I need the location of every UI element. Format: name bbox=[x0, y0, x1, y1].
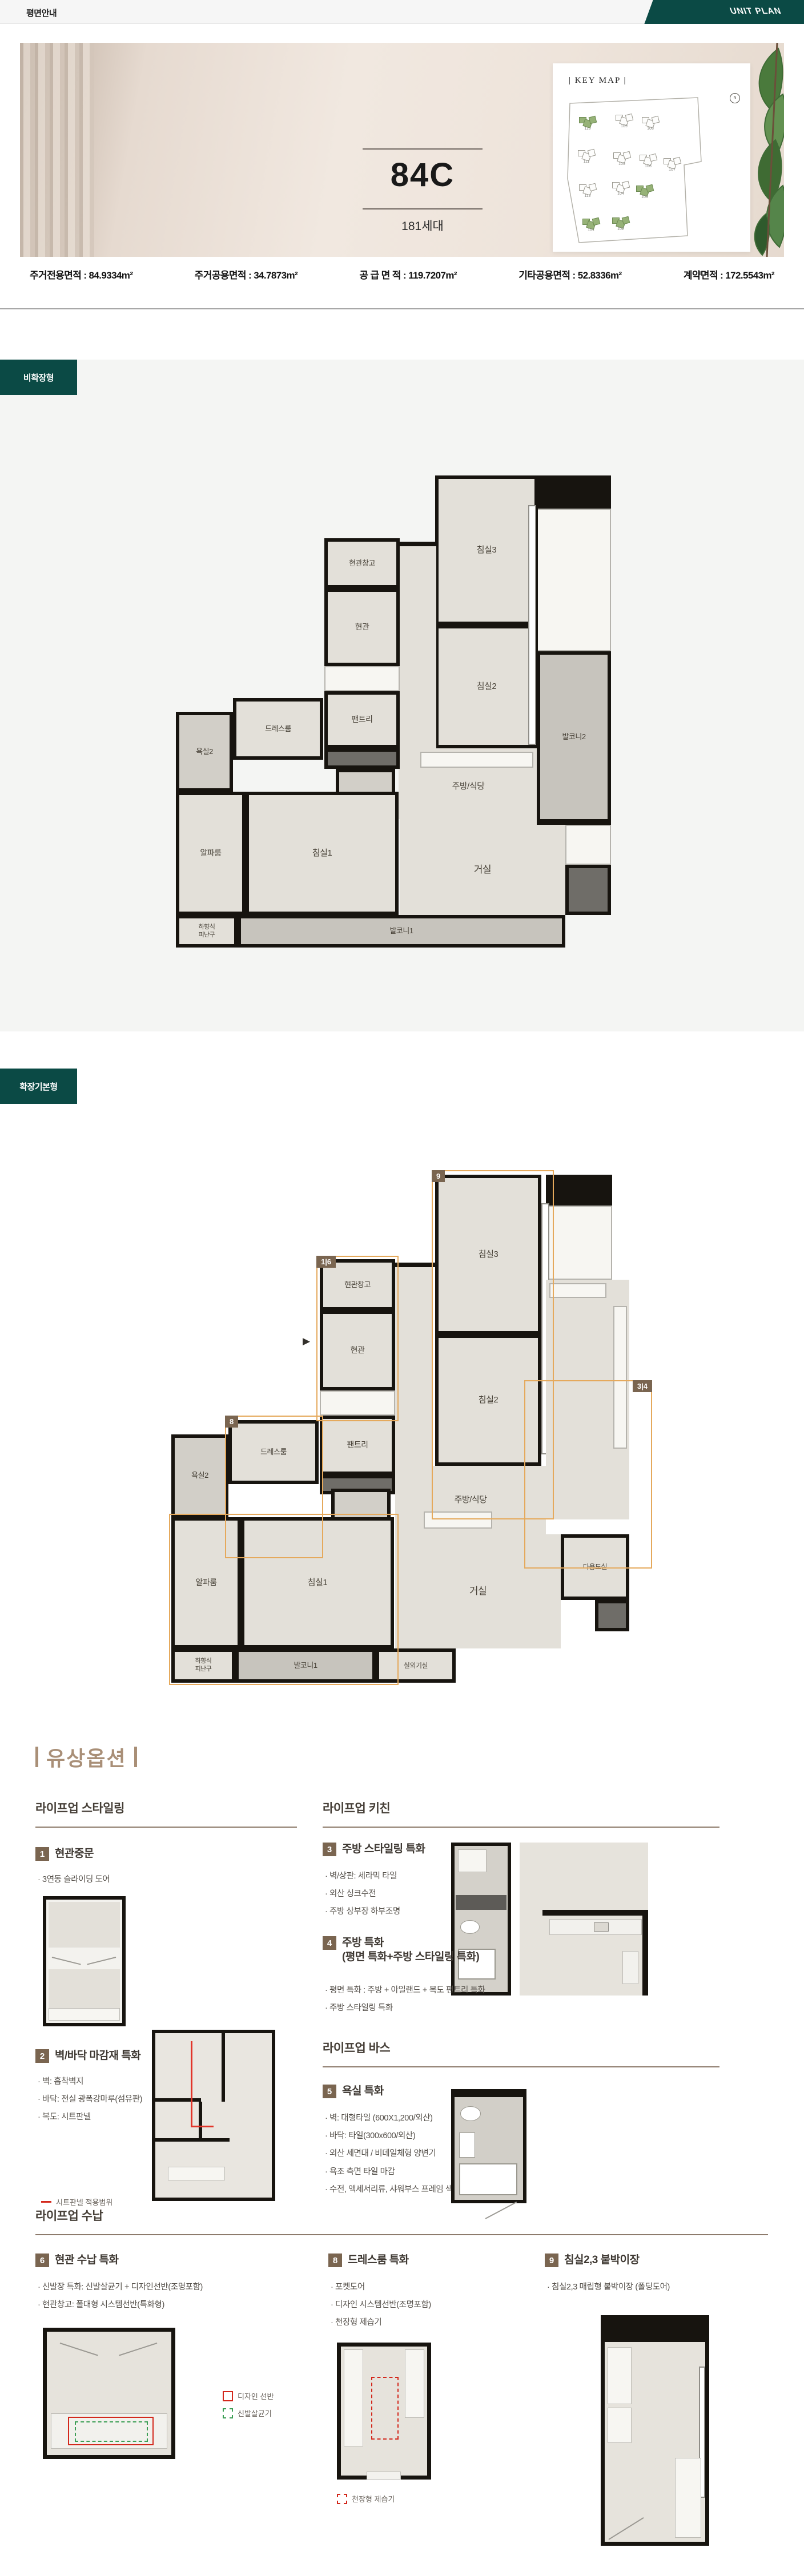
option-bullet: · 벽/상판: 세라믹 타일 bbox=[325, 1868, 400, 1885]
option-image-entry-storage bbox=[43, 2328, 175, 2459]
entry-storage: 현관창고 bbox=[324, 538, 400, 588]
option-bullet: · 외산 싱크수전 bbox=[325, 1885, 400, 1903]
mini-wall bbox=[155, 2098, 201, 2102]
wall bbox=[451, 2089, 526, 2097]
building-number: 104 bbox=[611, 192, 630, 196]
building-112: 112 bbox=[578, 182, 597, 199]
hero-banner: 84C 181세대 | KEY MAP | N 1101091081111051… bbox=[20, 43, 784, 257]
legend-label: 천장형 제습기 bbox=[352, 2493, 395, 2504]
option-item-9: 9 침실2,3 붙박이장 bbox=[545, 2254, 640, 2268]
keymap-card: | KEY MAP | N 11010910811110510610711210… bbox=[553, 63, 750, 252]
shoe-closet bbox=[324, 666, 400, 691]
unit-name-rule-top bbox=[363, 148, 483, 150]
option-image-bathroom bbox=[451, 2089, 526, 2225]
option-bullet: · 천장형 제습기 bbox=[331, 2314, 431, 2332]
building-number: 106 bbox=[638, 164, 658, 168]
title-bar-right bbox=[134, 1747, 137, 1767]
unit-plan-page: 평면안내 UNIT PLAN 84C 181세대 | KEY MAP | bbox=[0, 0, 804, 2576]
toilet-icon bbox=[460, 1920, 480, 1934]
tub-icon bbox=[459, 2163, 517, 2195]
option-item-2: 2 벽/바닥 마감재 특화 bbox=[35, 2049, 140, 2063]
paid-options-title-text: 유상옵션 bbox=[46, 1742, 126, 1772]
built-in-closet bbox=[608, 2408, 632, 2443]
stove-icon bbox=[594, 1922, 609, 1932]
floor-plan-expanded: ▶ 침실3침실2현관창고현관팬트리주방/식당다용도실거실욕실1드레스룸욕실2알파… bbox=[167, 1135, 652, 1711]
option-bullet: · 디자인 시스템선반(조명포함) bbox=[331, 2296, 431, 2314]
legend-label: 디자인 선반 bbox=[238, 2390, 274, 2401]
legend-label: 시트판넬 적용범위 bbox=[56, 2196, 112, 2207]
option-bullet: · 현관창고: 폴대형 시스템선반(특화형) bbox=[38, 2296, 203, 2314]
option-bullets-1: · 3연동 슬라이딩 도어 bbox=[38, 1871, 110, 1889]
dressroom: 드레스룸 bbox=[233, 698, 323, 760]
room-label: 팬트리 bbox=[347, 1440, 368, 1450]
badge-non-expanded: 비확장형 bbox=[0, 360, 77, 395]
balcony2: 발코니2 bbox=[537, 651, 611, 823]
area-item: 기타공용면적 : 52.8336m² bbox=[518, 267, 621, 281]
bedroom2: 침실2 bbox=[435, 625, 538, 748]
wall-mass bbox=[546, 1175, 612, 1206]
option-zone: 3|4 bbox=[524, 1380, 652, 1569]
option-bullets-9: · 침실2,3 매립형 붙박이장 (폴딩도어) bbox=[547, 2279, 670, 2296]
red-box-icon bbox=[223, 2391, 233, 2401]
duct bbox=[324, 748, 400, 769]
balcony-corner-dark bbox=[565, 865, 611, 915]
heading-kitchen: 라이프업 키친 bbox=[323, 1799, 390, 1816]
wall-mass bbox=[537, 475, 611, 509]
building-number: 101 bbox=[581, 228, 601, 232]
option-image-bedroom-closet bbox=[601, 2315, 709, 2546]
wall bbox=[542, 1910, 648, 1916]
building-103: 103 bbox=[635, 183, 654, 200]
bath2: 욕실2 bbox=[176, 712, 233, 792]
hall bbox=[520, 1843, 542, 1996]
bedroom3: 침실3 bbox=[435, 475, 538, 625]
utility-dark bbox=[595, 1600, 629, 1631]
option-no-9: 9 bbox=[545, 2254, 558, 2267]
building-number: 108 bbox=[641, 127, 660, 131]
window-bay bbox=[537, 509, 611, 651]
kitchen-counter-top bbox=[549, 1283, 606, 1298]
building-108: 108 bbox=[641, 115, 660, 132]
option-item-4: 4 주방 특화 (평면 특화+주방 스타일링 특화) bbox=[323, 1936, 479, 1964]
pantry: 팬트리 bbox=[320, 1416, 395, 1475]
green-dash-box-icon bbox=[223, 2408, 233, 2418]
building-number: 105 bbox=[612, 162, 632, 166]
balcony-corner-white bbox=[565, 825, 611, 865]
mini-wall bbox=[222, 2033, 225, 2102]
area-summary: 주거전용면적 : 84.9334m²주거공용면적 : 34.7873m²공 급 … bbox=[0, 267, 804, 281]
alpha-room: 알파룸 bbox=[176, 792, 246, 915]
built-in-closet bbox=[675, 2458, 701, 2538]
room-label: 발코니1 bbox=[389, 926, 413, 936]
option-title-3: 주방 스타일링 특화 bbox=[342, 1843, 425, 1857]
building-106: 106 bbox=[638, 152, 658, 170]
pocket-door bbox=[367, 2472, 401, 2480]
legend-row: 천장형 제습기 bbox=[337, 2493, 395, 2504]
corridor bbox=[395, 1266, 433, 1472]
balcony1: 발코니1 bbox=[238, 915, 565, 948]
toilet-icon bbox=[460, 2106, 481, 2121]
legend-dressroom: 천장형 제습기 bbox=[337, 2493, 395, 2504]
title-bar-left bbox=[35, 1747, 38, 1767]
page-title: 평면안내 bbox=[26, 7, 57, 19]
option-title-5: 욕실 특화 bbox=[342, 2085, 384, 2099]
option-title-4: 주방 특화 (평면 특화+주방 스타일링 특화) bbox=[342, 1936, 479, 1964]
option-title-6: 현관 수납 특화 bbox=[55, 2254, 118, 2268]
building-number: 102 bbox=[611, 227, 630, 231]
option-bullet: · 복도: 시트판넬 bbox=[38, 2109, 142, 2126]
sink-counter bbox=[622, 1951, 638, 1984]
legend-entry-storage: 디자인 선반 신발살균기 bbox=[223, 2390, 274, 2418]
building-111: 111 bbox=[577, 148, 596, 165]
room-label: 발코니2 bbox=[562, 732, 585, 741]
rule-kitchen bbox=[323, 1827, 719, 1828]
option-title-1: 현관중문 bbox=[55, 1847, 94, 1861]
ceiling-dehumidifier-highlight bbox=[371, 2377, 399, 2440]
room-label: 욕실2 bbox=[196, 747, 213, 756]
sheet-panel-highlight bbox=[191, 2126, 214, 2127]
bedroom1: 침실1 bbox=[246, 792, 399, 915]
option-bullets-2: · 벽: 흡착벽지· 바닥: 전실 광폭강마루(섬유판)· 복도: 시트판넬 bbox=[38, 2073, 142, 2127]
building-102: 102 bbox=[611, 215, 630, 232]
option-no-8: 8 bbox=[328, 2254, 342, 2267]
paid-options-title: 유상옵션 bbox=[35, 1742, 137, 1772]
room-label: 팬트리 bbox=[351, 715, 372, 725]
entry-upper-room bbox=[49, 1902, 120, 1948]
window-strip bbox=[528, 505, 536, 745]
bath2: 욕실2 bbox=[171, 1434, 228, 1517]
option-item-5: 5 욕실 특화 bbox=[323, 2085, 384, 2099]
building-107: 107 bbox=[662, 156, 682, 173]
building-number: 110 bbox=[578, 127, 597, 131]
unit-name: 84C bbox=[308, 156, 537, 194]
option-bullet: · 신발장 특화: 신발살균기 + 디자인선반(조명포함) bbox=[38, 2279, 203, 2296]
kitchen-counter bbox=[420, 752, 533, 768]
dark-band bbox=[456, 1895, 506, 1910]
entry-closet bbox=[49, 2008, 120, 2021]
zone-badge: 8 bbox=[225, 1416, 238, 1428]
mini-wall bbox=[155, 2138, 230, 2142]
option-bullet: · 벽: 흡착벽지 bbox=[38, 2073, 142, 2091]
option-item-3: 3 주방 스타일링 특화 bbox=[323, 1843, 425, 1857]
building-104: 104 bbox=[611, 180, 630, 197]
section-non-expanded: 비확장형 발코니2침실3침실2현관창고현관팬트리주방/식당욕실1드레스룸욕실2거… bbox=[0, 360, 804, 1031]
room-label: 현관 bbox=[355, 622, 369, 632]
page-header: 평면안내 UNIT PLAN bbox=[0, 0, 804, 24]
option-item-6: 6 현관 수납 특화 bbox=[35, 2254, 118, 2268]
room-label: 거실 bbox=[474, 864, 491, 876]
pantry: 팬트리 bbox=[324, 691, 400, 748]
building-number: 111 bbox=[577, 160, 596, 164]
area-item: 주거공용면적 : 34.7873m² bbox=[195, 267, 298, 281]
built-in-closet bbox=[608, 2347, 632, 2404]
red-dash-box-icon bbox=[337, 2494, 347, 2504]
option-bullet: · 포켓도어 bbox=[331, 2279, 431, 2296]
site-map: N 110109108111105106107112104103101102 bbox=[562, 93, 741, 246]
closet-left bbox=[344, 2349, 363, 2446]
building-number: 107 bbox=[662, 168, 682, 172]
option-image-kitchen bbox=[451, 1843, 648, 1996]
door-leaf-icon bbox=[485, 2202, 517, 2219]
building-109: 109 bbox=[614, 112, 634, 130]
option-title-9: 침실2,3 붙박이장 bbox=[564, 2254, 640, 2268]
room-label: 알파룸 bbox=[200, 848, 221, 858]
rule-storage bbox=[35, 2234, 768, 2235]
room-label: 하향식 피난구 bbox=[199, 924, 215, 940]
option-bullet: · 주방 상부장 하부조명 bbox=[325, 1903, 400, 1921]
option-zone bbox=[169, 1514, 399, 1685]
option-no-3: 3 bbox=[323, 1843, 336, 1856]
room-label: 현관창고 bbox=[349, 559, 375, 568]
legend-row: 신발살균기 bbox=[223, 2408, 274, 2418]
zone-badge: 9 bbox=[432, 1170, 445, 1182]
option-zone: 1|6 bbox=[316, 1256, 399, 1421]
entry: 현관 bbox=[324, 588, 400, 666]
area-item: 주거전용면적 : 84.9334m² bbox=[30, 267, 132, 281]
option-no-1: 1 bbox=[35, 1847, 49, 1861]
option-bullet: · 바닥: 전실 광폭강마루(섬유판) bbox=[38, 2091, 142, 2109]
entry-arrow-icon: ▶ bbox=[303, 1336, 310, 1347]
curtain-decor bbox=[20, 43, 94, 257]
wall bbox=[642, 1910, 648, 1996]
option-image-dressroom bbox=[337, 2343, 431, 2480]
building-number: 112 bbox=[578, 194, 597, 198]
keymap-title: | KEY MAP | bbox=[569, 76, 626, 86]
area-item: 공 급 면 적 : 119.7207m² bbox=[359, 267, 457, 281]
room-label: 거실 bbox=[469, 1585, 487, 1597]
building-105: 105 bbox=[612, 150, 632, 167]
legend-row: 시트판넬 적용범위 bbox=[41, 2196, 112, 2207]
corridor-wall bbox=[399, 542, 439, 546]
option-no-2: 2 bbox=[35, 2049, 49, 2063]
living: 거실 bbox=[400, 825, 565, 915]
compass-icon: N bbox=[730, 93, 740, 103]
rule-styling bbox=[35, 1827, 297, 1828]
red-line-icon bbox=[41, 2201, 51, 2203]
mini-wall bbox=[199, 2102, 202, 2142]
mini-balcony bbox=[168, 2167, 225, 2180]
legend-label: 신발살균기 bbox=[238, 2408, 272, 2418]
option-title-2: 벽/바닥 마감재 특화 bbox=[55, 2049, 140, 2063]
room-label: 주방/식당 bbox=[452, 781, 485, 792]
sheet-panel-highlight bbox=[191, 2041, 192, 2127]
option-bullet: · 평면 특화 : 주방 + 아일랜드 + 복도 팬트리 특화 bbox=[325, 1982, 485, 1999]
option-bullets-3: · 벽/상판: 세라믹 타일· 외산 싱크수전· 주방 상부장 하부조명 bbox=[325, 1868, 400, 1921]
closet-right bbox=[405, 2349, 424, 2418]
option-bullet: · 주방 스타일링 특화 bbox=[325, 1999, 485, 2017]
heading-styling: 라이프업 스타일링 bbox=[35, 1799, 124, 1816]
window-bay bbox=[546, 1206, 612, 1280]
area-item: 계약면적 : 172.5543m² bbox=[684, 267, 774, 281]
divider-line bbox=[0, 308, 804, 309]
unit-name-rule-bottom bbox=[363, 208, 483, 209]
option-item-8: 8 드레스룸 특화 bbox=[328, 2254, 409, 2268]
room-label: 침실3 bbox=[477, 545, 496, 556]
corridor-wall bbox=[395, 1263, 435, 1267]
option-bullets-8: · 포켓도어· 디자인 시스템선반(조명포함)· 천장형 제습기 bbox=[331, 2279, 431, 2332]
option-no-5: 5 bbox=[323, 2085, 336, 2098]
rule-bath bbox=[323, 2066, 719, 2067]
sink-icon bbox=[459, 2132, 475, 2158]
legend-row: 디자인 선반 bbox=[223, 2390, 274, 2401]
option-bullets-4: · 평면 특화 : 주방 + 아일랜드 + 복도 팬트리 특화· 주방 스타일링… bbox=[325, 1982, 485, 2017]
building-101: 101 bbox=[581, 216, 601, 233]
escape-hatch: 하향식 피난구 bbox=[176, 915, 238, 948]
zone-badge: 1|6 bbox=[316, 1256, 336, 1268]
option-no-6: 6 bbox=[35, 2254, 49, 2267]
room-label: 침실1 bbox=[312, 848, 332, 859]
option-bullet: · 3연동 슬라이딩 도어 bbox=[38, 1871, 110, 1889]
option-bullet: · 침실2,3 매립형 붙박이장 (폴딩도어) bbox=[547, 2279, 670, 2296]
shoe-sterilizer-highlight bbox=[75, 2421, 148, 2442]
heading-storage: 라이프업 수납 bbox=[35, 2207, 103, 2224]
room-label: 욕실2 bbox=[191, 1471, 208, 1480]
household-count: 181세대 bbox=[308, 217, 537, 234]
building-number: 109 bbox=[614, 124, 634, 128]
room-label: 침실2 bbox=[477, 682, 496, 692]
option-title-8: 드레스룸 특화 bbox=[348, 2254, 409, 2268]
room-label: 실외기실 bbox=[404, 1662, 428, 1670]
legend-sheet-panel: 시트판넬 적용범위 bbox=[41, 2196, 112, 2207]
building-110: 110 bbox=[578, 115, 597, 132]
option-bullets-6: · 신발장 특화: 신발살균기 + 디자인선반(조명포함)· 현관창고: 폴대형… bbox=[38, 2279, 203, 2314]
badge-expanded: 확장기본형 bbox=[0, 1069, 77, 1104]
option-no-4: 4 bbox=[323, 1936, 336, 1950]
building-number: 103 bbox=[635, 195, 654, 199]
option-item-1: 1 현관중문 bbox=[35, 1847, 94, 1861]
option-image-finish-plan bbox=[136, 2030, 289, 2218]
zone-badge: 3|4 bbox=[633, 1380, 652, 1392]
room-label: 드레스룸 bbox=[265, 724, 291, 733]
unit-plan-ribbon-label: UNIT PLAN bbox=[729, 6, 783, 16]
floor-plan-non-expanded: 발코니2침실3침실2현관창고현관팬트리주방/식당욕실1드레스룸욕실2거실알파룸침… bbox=[171, 431, 614, 948]
option-image-entrance-door bbox=[43, 1896, 126, 2026]
closet bbox=[458, 1849, 487, 1872]
heading-bath: 라이프업 바스 bbox=[323, 2039, 390, 2056]
